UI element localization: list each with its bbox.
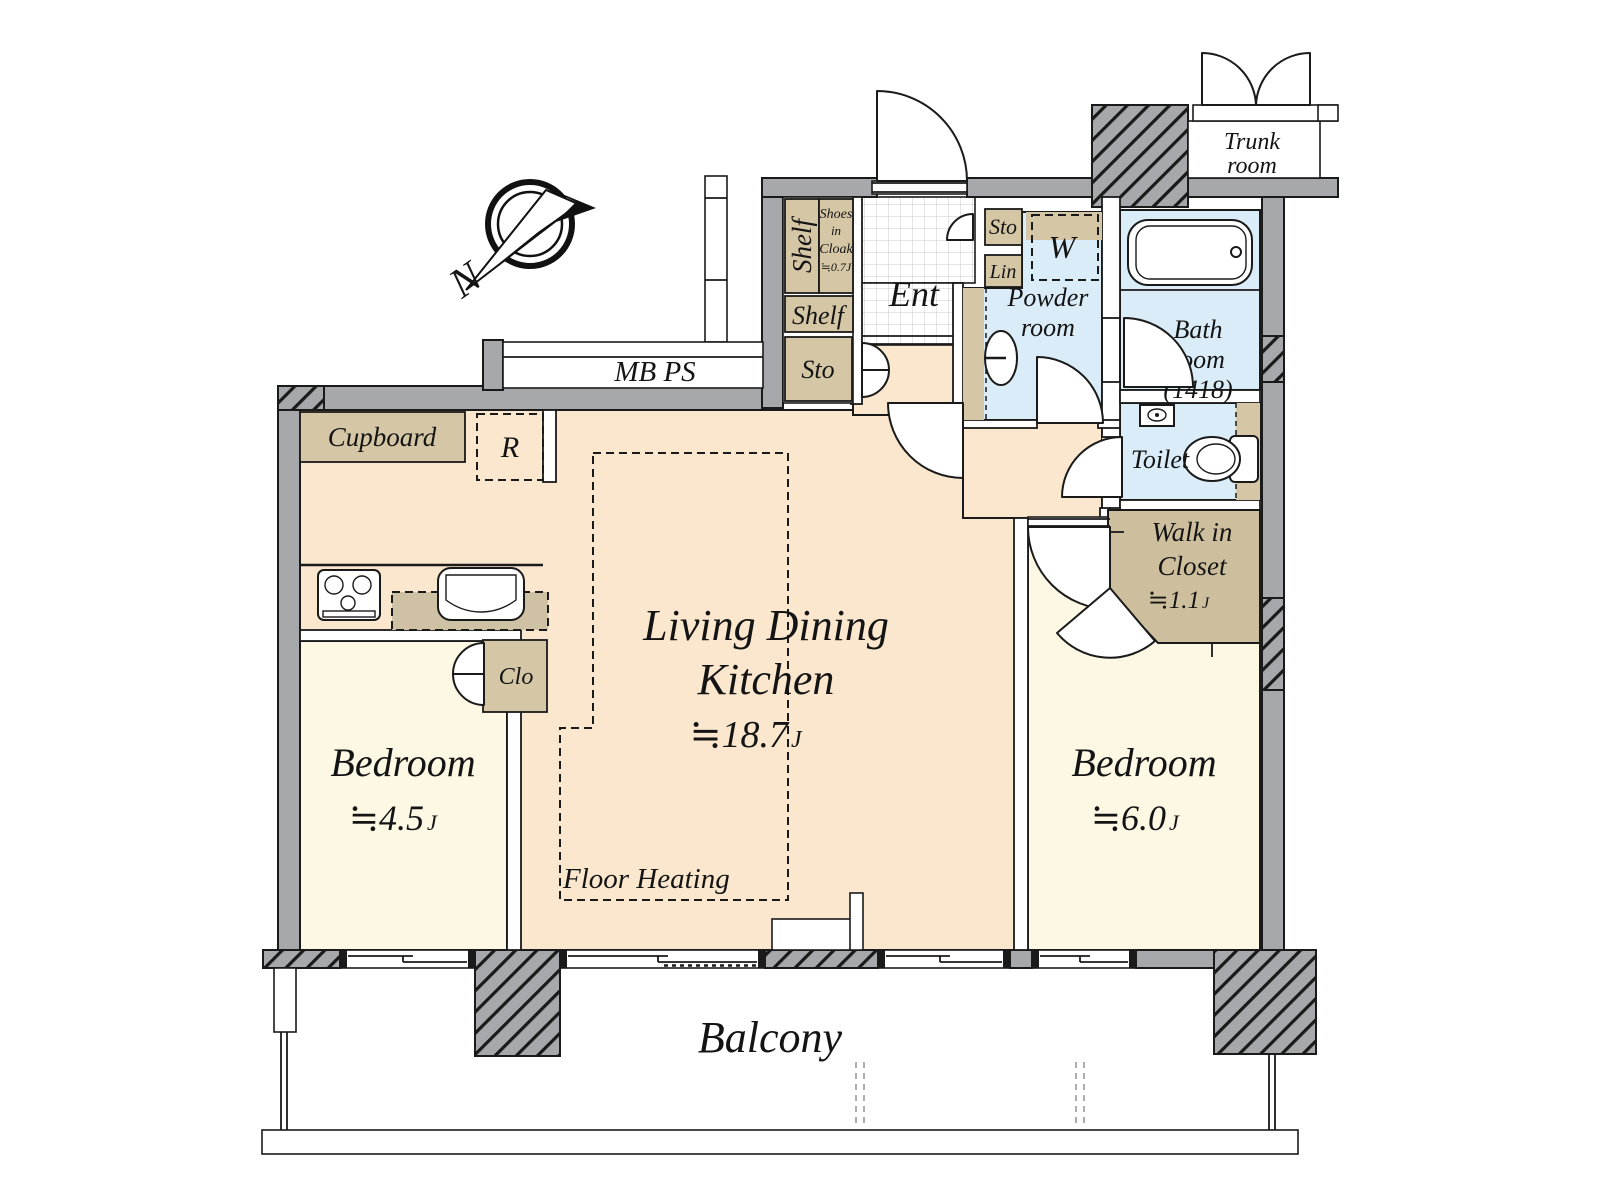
wall-right-hatch-lower xyxy=(1262,598,1284,690)
window-ldk-left xyxy=(560,950,765,968)
sink-icon xyxy=(438,568,524,620)
ldk-label-2: Kitchen xyxy=(697,655,835,704)
wall-bedroom60-ldk xyxy=(1014,518,1028,950)
trunk-room-threshold xyxy=(1193,105,1337,121)
ldk-size-unit: J xyxy=(791,727,803,753)
wall-top-entrance-right xyxy=(967,178,1092,197)
compass-icon: N xyxy=(440,182,596,308)
corridor-strip xyxy=(705,176,727,342)
shoes-label-2: in xyxy=(831,223,841,238)
shelf-label: Shelf xyxy=(792,301,848,330)
shelf-vertical-label: Shelf xyxy=(787,216,817,273)
wall-top-left xyxy=(278,386,770,410)
bath-label-1: Bath xyxy=(1173,315,1222,344)
wic-label-1: Walk in xyxy=(1152,517,1233,547)
trunk-door-left xyxy=(1202,53,1256,105)
shoes-label-3: Cloak xyxy=(819,242,853,257)
floor-plan-page: MB PS Trunk room N xyxy=(0,0,1600,1200)
toilet-hand-basin-drain xyxy=(1155,413,1159,417)
balcony-wall-stub-left xyxy=(274,968,296,1032)
bedroom-large-size-unit: J xyxy=(1169,810,1180,835)
wall-kitchen-stub xyxy=(543,410,556,482)
wall-toilet-wic xyxy=(1120,500,1260,510)
wall-right-hatch-upper xyxy=(1262,336,1284,382)
clo-label: Clo xyxy=(499,664,534,690)
wall-top-entrance-left xyxy=(762,178,877,197)
balcony-step xyxy=(772,919,852,950)
wall-left xyxy=(278,386,300,950)
window-bedroom-small xyxy=(340,950,475,968)
wall-bottom-center xyxy=(765,950,878,968)
pillar-balcony-center xyxy=(475,950,560,1056)
bathtub-drain xyxy=(1231,247,1241,257)
wall-powder-bath-upper xyxy=(1102,197,1120,318)
balcony-group: Balcony xyxy=(262,968,1298,1154)
sto-lower-label: Sto xyxy=(801,355,834,384)
hall-storage: Sto Lin xyxy=(985,209,1022,287)
shoes-label-1: Shoes xyxy=(820,207,853,222)
trunk-label-2: room xyxy=(1227,153,1277,179)
wall-bottom-right xyxy=(1136,950,1214,968)
north-label: N xyxy=(440,253,492,308)
pillar-top-right xyxy=(1092,105,1188,207)
wic-size-unit: J xyxy=(1202,595,1210,612)
wic-label-2: Closet xyxy=(1157,551,1228,581)
wall-hatch-top-left-corner xyxy=(278,386,324,410)
refrigerator-label: R xyxy=(500,431,519,464)
wic-size: ≒1.1 xyxy=(1148,587,1200,614)
bedroom-large-label: Bedroom xyxy=(1071,740,1216,785)
bedroom-large-size: ≒6.0 xyxy=(1091,798,1166,838)
ldk-size: ≒18.7 xyxy=(690,714,790,756)
toilet-label: Toilet xyxy=(1131,445,1190,474)
sto-upper-label: Sto xyxy=(989,214,1017,239)
ldk-label-1: Living Dining xyxy=(642,601,889,650)
washer-label: W xyxy=(1049,229,1079,265)
entrance-door xyxy=(877,91,967,181)
wall-top-right xyxy=(1188,178,1338,197)
vanity-counter xyxy=(963,288,984,420)
window-bedroom-large xyxy=(1032,950,1136,968)
lin-label: Lin xyxy=(989,261,1017,283)
cupboard-label: Cupboard xyxy=(328,422,437,452)
pillar-balcony-right xyxy=(1214,950,1316,1054)
shoes-label-4: ≒0.7J xyxy=(821,260,852,274)
bedroom-small-size-unit: J xyxy=(427,810,438,835)
trunk-room-threshold-end xyxy=(1318,105,1338,121)
floor-heating-label: Floor Heating xyxy=(562,863,730,895)
mb-ps-label: MB PS xyxy=(613,356,696,388)
powder-label-2: room xyxy=(1021,313,1075,342)
bedroom-small-label: Bedroom xyxy=(330,740,475,785)
balcony-step-rail xyxy=(850,893,863,950)
balcony-label: Balcony xyxy=(698,1013,843,1062)
entrance-storage: Shelf Shoes in Cloak ≒0.7J Shelf Sto xyxy=(783,197,854,403)
balcony-railing xyxy=(262,1130,1298,1154)
bedroom-small-size: ≒4.5 xyxy=(349,798,424,838)
wall-powder-left xyxy=(953,283,963,420)
powder-label-1: Powder xyxy=(1007,283,1090,312)
wall-entry-closet-left xyxy=(762,178,783,408)
wall-powder-bottom xyxy=(953,420,1037,428)
trunk-label-1: Trunk xyxy=(1224,129,1280,155)
stove-icon xyxy=(318,570,380,620)
floor-plan-drawing: MB PS Trunk room N xyxy=(0,0,1600,1200)
trunk-door-right xyxy=(1256,53,1310,105)
ent-label: Ent xyxy=(888,274,940,314)
wall-stub-mbps xyxy=(483,340,503,390)
wall-bottom-left-corner xyxy=(263,950,340,968)
wall-bottom-bedroom-joint xyxy=(1010,950,1032,968)
window-ldk-right xyxy=(878,950,1010,968)
wall-right xyxy=(1262,197,1284,950)
